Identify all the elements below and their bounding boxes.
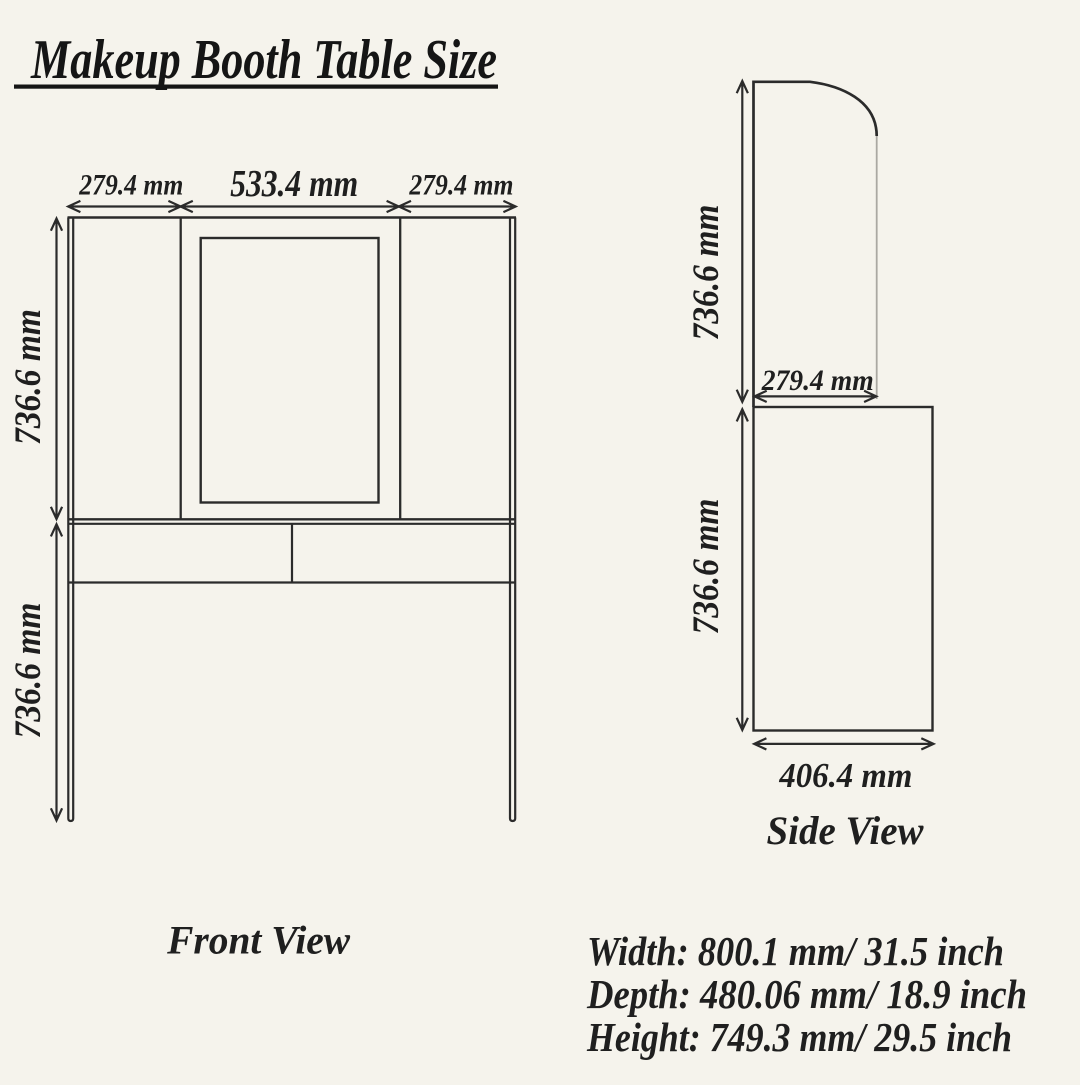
- svg-text:736.6 mm: 736.6 mm: [8, 603, 49, 739]
- svg-text:406.4 mm: 406.4 mm: [778, 757, 912, 795]
- svg-text:Width: 800.1 mm/ 31.5 inch: Width: 800.1 mm/ 31.5 inch: [587, 928, 1004, 974]
- svg-text:736.6 mm: 736.6 mm: [8, 309, 49, 445]
- svg-text:279.4 mm: 279.4 mm: [761, 364, 874, 397]
- svg-text:533.4 mm: 533.4 mm: [230, 163, 358, 205]
- svg-text:279.4 mm: 279.4 mm: [409, 169, 514, 202]
- svg-text:Depth: 480.06 mm/ 18.9 inch: Depth: 480.06 mm/ 18.9 inch: [586, 971, 1027, 1017]
- svg-text:736.6 mm: 736.6 mm: [686, 499, 727, 635]
- svg-text:Front View: Front View: [166, 918, 350, 963]
- svg-text:736.6 mm: 736.6 mm: [686, 205, 727, 341]
- svg-text:279.4 mm: 279.4 mm: [78, 169, 183, 202]
- svg-text:Side View: Side View: [767, 808, 924, 853]
- svg-text:Height: 749.3 mm/ 29.5 inch: Height: 749.3 mm/ 29.5 inch: [586, 1014, 1012, 1060]
- svg-text:Makeup Booth Table Size: Makeup Booth Table Size: [30, 29, 497, 91]
